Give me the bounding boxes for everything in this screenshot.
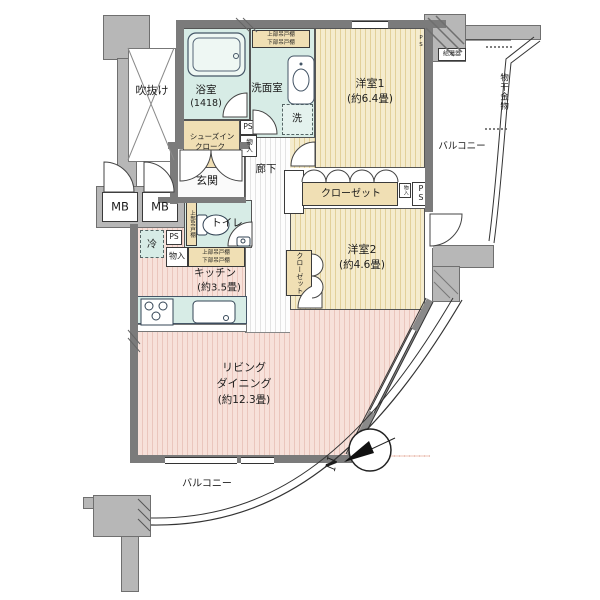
structure-bottom-left-block <box>93 495 151 537</box>
kitchen-size: (約3.5畳) <box>197 283 241 294</box>
living-label-2: ダイニング <box>217 378 272 390</box>
living-label-1: リビング <box>222 362 266 374</box>
opening-balcony-door <box>425 212 433 248</box>
living-size: (約12.3畳) <box>218 395 271 407</box>
wall-top <box>176 20 446 28</box>
wall-entry-left <box>170 142 178 204</box>
structure-bottom-left-notch <box>83 497 94 509</box>
closet-main-label: クローゼット <box>321 189 381 200</box>
storage-label-closet: 物入 <box>402 185 408 195</box>
fridge-label: 冷 <box>147 240 157 251</box>
compass-north-label: N <box>324 456 342 472</box>
structure-right-step-a <box>432 245 494 268</box>
washroom-label: 洗面室 <box>251 83 283 95</box>
kitchen-cabinet-upper-label: 上部吊戸棚 <box>202 250 230 256</box>
ps-label-mid: PS <box>169 233 178 241</box>
bedroom2-size: (約4.6畳) <box>339 260 385 272</box>
void-label: 吹抜け <box>136 85 169 97</box>
closet-bedroom2-label: クローゼット <box>295 252 303 294</box>
mb-label-1: MB <box>111 201 129 214</box>
balcony-bottom-label: バルコニー <box>182 479 232 490</box>
window-bedroom1-top <box>352 21 388 29</box>
structure-bottom-left-bar <box>121 536 139 592</box>
washer-label: 洗 <box>292 114 302 125</box>
entrance-label: 玄関 <box>196 175 218 187</box>
mb-label-2: MB <box>151 201 169 214</box>
kitchen-cabinet-lower-label: 下部吊戸棚 <box>202 258 230 264</box>
toilet-label: トイレ <box>211 218 243 230</box>
ps-label-top-right: PS <box>418 35 424 49</box>
wall-entry-top-l <box>168 142 184 149</box>
wall-kitchen-left <box>130 224 138 463</box>
kitchen-counter <box>137 296 247 324</box>
balcony-right-label: バルコニー <box>438 142 485 152</box>
window-living-bottom-2 <box>241 457 274 464</box>
bedroom1-size: (約6.4畳) <box>347 94 393 106</box>
kitchen-label: キッチン <box>194 268 236 280</box>
living-floor-upper <box>290 310 430 333</box>
bedroom1-label: 洋室1 <box>356 78 385 90</box>
storage-label-shoes: 物入 <box>244 139 251 154</box>
water-heater-label: 給湯器 <box>443 52 461 59</box>
wall-left-upper <box>176 20 184 146</box>
living-floor <box>250 333 430 457</box>
window-living-bottom-1 <box>165 457 237 464</box>
washroom-cabinet-lower-label: 下部吊戸棚 <box>267 40 295 46</box>
bathroom-size: (1418) <box>190 99 222 109</box>
bedroom2-label: 洋室2 <box>348 244 377 256</box>
kitchen-counter-ledge <box>137 324 247 332</box>
washroom-cabinet-upper-label: 上部吊戸棚 <box>267 32 295 38</box>
storage-label-kitchen: 物入 <box>169 253 185 262</box>
shoes-cloak-label-1: シューズイン <box>190 133 235 141</box>
laundry-hardware-label: 物干金物 <box>498 73 507 111</box>
bathroom-label: 浴室 <box>196 85 217 97</box>
bedroom1-ext <box>290 138 315 168</box>
ps-label-closet: PS <box>416 184 425 202</box>
ps-label-shoes: PS <box>243 123 252 131</box>
structure-top-right-bar <box>465 25 541 40</box>
toilet-cabinet-label: 上部吊戸棚 <box>189 210 195 238</box>
shoes-cloak-label-2: クローク <box>195 143 225 151</box>
floor-plan: 吹抜け 浴室 (1418) 洗面室 上部吊戸棚 下部吊戸棚 洗 洋室1 (約6.… <box>0 0 600 600</box>
storage-box-hall <box>284 170 304 214</box>
wall-entry-bottom <box>158 197 246 203</box>
structure-right-step-b <box>432 266 460 302</box>
corridor-label: 廊下 <box>256 164 277 176</box>
